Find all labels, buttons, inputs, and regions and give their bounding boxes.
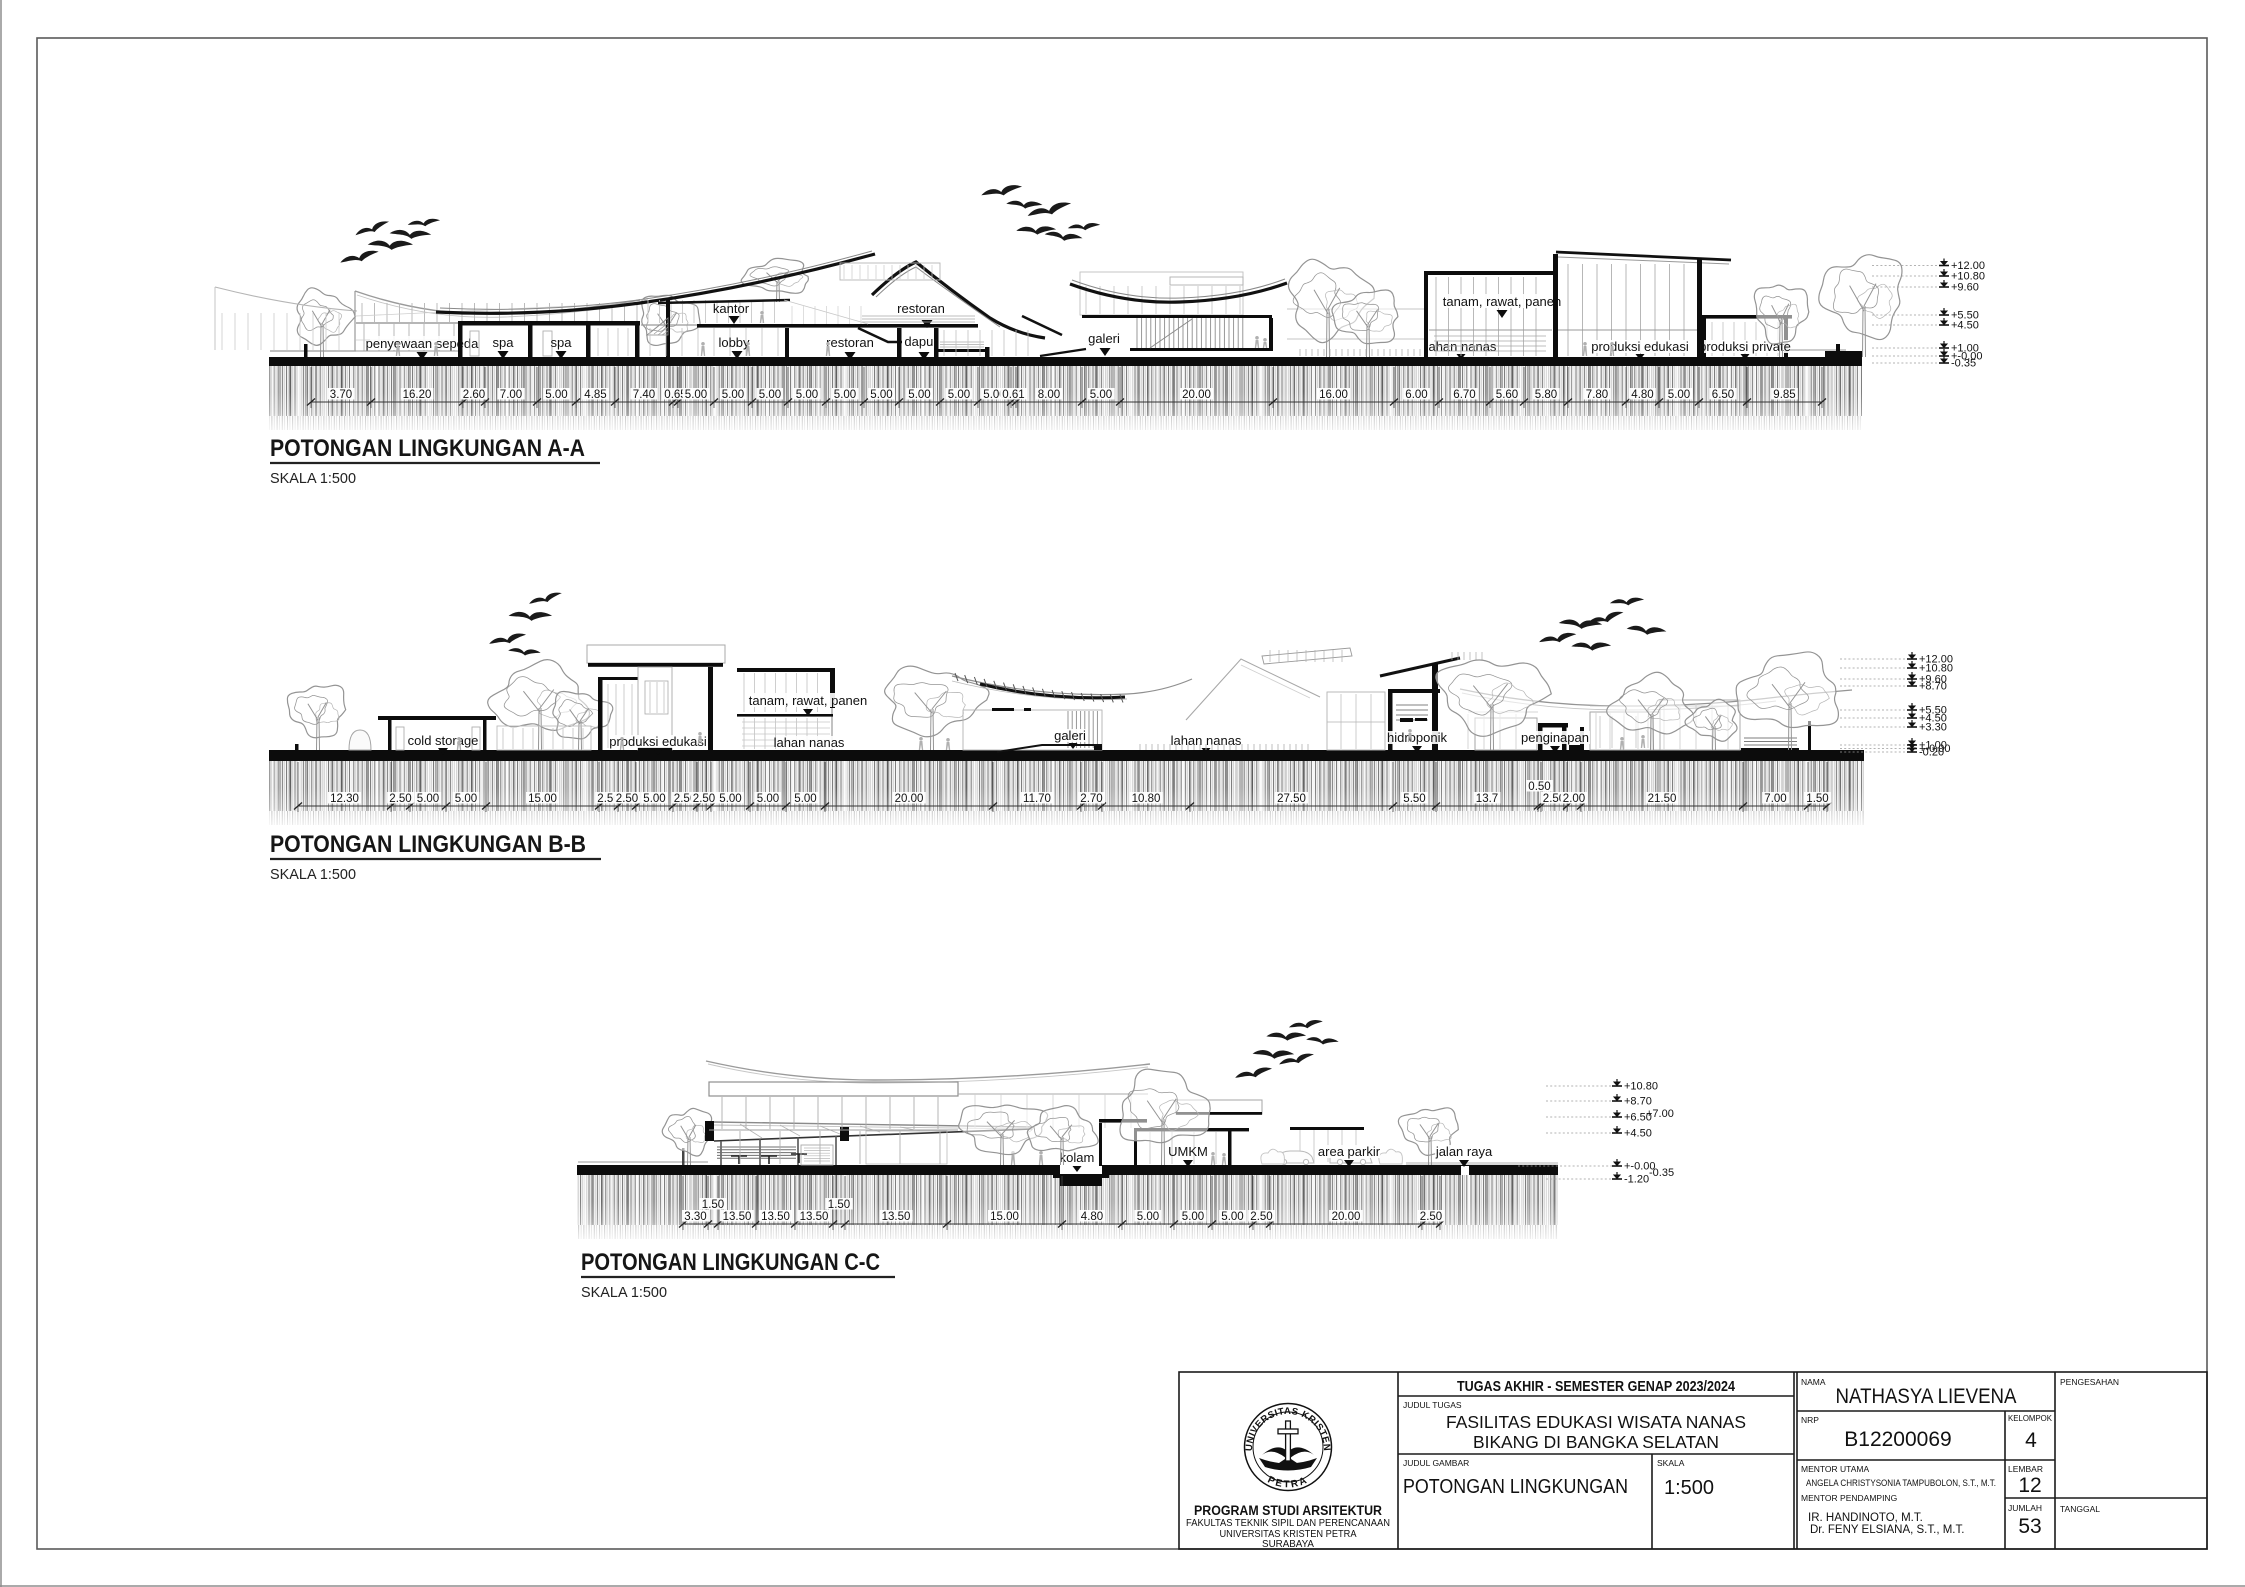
svg-text:5.00: 5.00	[948, 389, 970, 401]
svg-text:NAMA: NAMA	[1801, 1377, 1826, 1387]
svg-text:2.00: 2.00	[1563, 793, 1585, 805]
svg-text:TUGAS AKHIR - SEMESTER GENAP 2: TUGAS AKHIR - SEMESTER GENAP 2023/2024	[1457, 1378, 1736, 1395]
svg-text:5.00: 5.00	[643, 793, 665, 805]
svg-text:6.70: 6.70	[1453, 389, 1475, 401]
svg-text:12.30: 12.30	[330, 793, 359, 805]
svg-text:+7.00: +7.00	[1646, 1108, 1674, 1120]
svg-text:SKALA 1:500: SKALA 1:500	[270, 470, 356, 487]
svg-text:restoran: restoran	[897, 301, 945, 316]
svg-text:5.00: 5.00	[1137, 1211, 1159, 1223]
svg-text:spa: spa	[551, 335, 573, 350]
svg-text:+4.50: +4.50	[1624, 1128, 1652, 1140]
svg-text:spa: spa	[493, 335, 515, 350]
svg-text:5.00: 5.00	[417, 793, 439, 805]
svg-text:galeri: galeri	[1054, 728, 1086, 743]
svg-text:TANGGAL: TANGGAL	[2060, 1504, 2100, 1514]
svg-text:FASILITAS EDUKASI WISATA NANAS: FASILITAS EDUKASI WISATA NANAS	[1446, 1412, 1746, 1432]
svg-text:13.7: 13.7	[1476, 793, 1498, 805]
svg-text:area parkir: area parkir	[1318, 1144, 1381, 1159]
svg-text:20.00: 20.00	[1182, 389, 1211, 401]
svg-text:5.00: 5.00	[1182, 1211, 1204, 1223]
svg-text:UMKM: UMKM	[1168, 1144, 1208, 1159]
svg-text:5.00: 5.00	[1221, 1211, 1243, 1223]
svg-text:7.00: 7.00	[500, 389, 522, 401]
svg-text:2.50: 2.50	[616, 793, 638, 805]
svg-text:5.00: 5.00	[794, 793, 816, 805]
svg-text:POTONGAN LINGKUNGAN: POTONGAN LINGKUNGAN	[1403, 1476, 1628, 1498]
svg-text:PROGRAM STUDI ARSITEKTUR: PROGRAM STUDI ARSITEKTUR	[1194, 1503, 1382, 1518]
svg-text:2.50: 2.50	[389, 793, 411, 805]
svg-text:5.00: 5.00	[455, 793, 477, 805]
svg-text:+9.60: +9.60	[1951, 282, 1979, 294]
svg-text:+10.80: +10.80	[1624, 1081, 1658, 1093]
svg-text:21.50: 21.50	[1648, 793, 1677, 805]
svg-text:13.50: 13.50	[882, 1211, 911, 1223]
svg-text:-0.20: -0.20	[1919, 747, 1944, 759]
svg-text:penginapan: penginapan	[1521, 730, 1589, 745]
svg-text:5.60: 5.60	[1496, 389, 1518, 401]
svg-text:+8.70: +8.70	[1624, 1096, 1652, 1108]
svg-text:2.50: 2.50	[1420, 1211, 1442, 1223]
svg-text:tanam, rawat, panen: tanam, rawat, panen	[1443, 294, 1562, 309]
svg-text:5.00: 5.00	[796, 389, 818, 401]
svg-text:4.80: 4.80	[1081, 1211, 1103, 1223]
svg-text:+3.30: +3.30	[1919, 722, 1947, 734]
svg-text:16.20: 16.20	[403, 389, 432, 401]
svg-text:restoran: restoran	[826, 335, 874, 350]
svg-text:4.80: 4.80	[1631, 389, 1653, 401]
svg-text:27.50: 27.50	[1277, 793, 1306, 805]
svg-text:16.00: 16.00	[1319, 389, 1348, 401]
svg-text:7.00: 7.00	[1764, 793, 1786, 805]
svg-text:2.50: 2.50	[1250, 1211, 1272, 1223]
svg-text:PENGESAHAN: PENGESAHAN	[2060, 1377, 2119, 1387]
svg-text:5.00: 5.00	[759, 389, 781, 401]
svg-text:JUMLAH: JUMLAH	[2008, 1503, 2042, 1513]
svg-text:6.50: 6.50	[1712, 389, 1734, 401]
svg-text:MENTOR UTAMA: MENTOR UTAMA	[1801, 1464, 1869, 1474]
svg-text:1.50: 1.50	[828, 1199, 850, 1211]
svg-text:7.40: 7.40	[633, 389, 655, 401]
svg-text:NATHASYA LIEVENA: NATHASYA LIEVENA	[1836, 1385, 2017, 1408]
svg-text:5.00: 5.00	[908, 389, 930, 401]
svg-text:kolam: kolam	[1060, 1150, 1095, 1165]
svg-text:JUDUL GAMBAR: JUDUL GAMBAR	[1403, 1458, 1469, 1468]
svg-text:JUDUL TUGAS: JUDUL TUGAS	[1403, 1400, 1462, 1410]
svg-text:4.85: 4.85	[584, 389, 606, 401]
svg-text:-0.35: -0.35	[1649, 1167, 1674, 1179]
svg-text:15.00: 15.00	[990, 1211, 1019, 1223]
svg-text:+4.50: +4.50	[1951, 320, 1979, 332]
svg-text:IR. HANDINOTO, M.T.: IR. HANDINOTO, M.T.	[1808, 1512, 1923, 1524]
svg-text:produksi edukasi: produksi edukasi	[1591, 339, 1689, 354]
svg-text:B12200069: B12200069	[1844, 1428, 1951, 1451]
svg-text:5.00: 5.00	[1668, 389, 1690, 401]
svg-text:5.00: 5.00	[722, 389, 744, 401]
svg-text:SKALA 1:500: SKALA 1:500	[270, 866, 356, 883]
svg-text:SKALA 1:500: SKALA 1:500	[581, 1284, 667, 1301]
svg-text:-1.20: -1.20	[1624, 1174, 1649, 1186]
svg-text:20.00: 20.00	[1332, 1211, 1361, 1223]
svg-text:9.85: 9.85	[1773, 389, 1795, 401]
svg-text:FAKULTAS TEKNIK SIPIL DAN PERE: FAKULTAS TEKNIK SIPIL DAN PERENCANAAN	[1186, 1518, 1390, 1529]
svg-text:SKALA: SKALA	[1657, 1458, 1685, 1468]
svg-text:4: 4	[2025, 1429, 2037, 1452]
svg-text:5.00: 5.00	[685, 389, 707, 401]
svg-text:Dr. FENY ELSIANA, S.T., M.T.: Dr. FENY ELSIANA, S.T., M.T.	[1810, 1524, 1964, 1536]
svg-text:dapur: dapur	[904, 334, 938, 349]
svg-text:cold storage: cold storage	[408, 733, 479, 748]
svg-text:5.80: 5.80	[1535, 389, 1557, 401]
svg-text:0.61: 0.61	[1002, 389, 1024, 401]
svg-text:jalan raya: jalan raya	[1435, 1144, 1493, 1159]
svg-text:13.50: 13.50	[723, 1211, 752, 1223]
svg-text:BIKANG DI BANGKA SELATAN: BIKANG DI BANGKA SELATAN	[1473, 1432, 1719, 1452]
svg-text:KELOMPOK: KELOMPOK	[2008, 1413, 2052, 1423]
svg-text:5.00: 5.00	[719, 793, 741, 805]
svg-text:POTONGAN LINGKUNGAN A-A: POTONGAN LINGKUNGAN A-A	[270, 435, 585, 462]
svg-text:LEMBAR: LEMBAR	[2008, 1464, 2043, 1474]
svg-text:5.00: 5.00	[1090, 389, 1112, 401]
svg-text:1.50: 1.50	[702, 1199, 724, 1211]
svg-text:5.50: 5.50	[1403, 793, 1425, 805]
svg-text:2.70: 2.70	[1080, 793, 1102, 805]
svg-text:1:500: 1:500	[1664, 1477, 1714, 1499]
svg-text:-0.35: -0.35	[1951, 358, 1976, 370]
svg-text:lobby: lobby	[718, 335, 750, 350]
svg-text:5.00: 5.00	[545, 389, 567, 401]
svg-text:5.00: 5.00	[757, 793, 779, 805]
svg-text:5.00: 5.00	[834, 389, 856, 401]
svg-text:13.50: 13.50	[800, 1211, 829, 1223]
svg-text:6.00: 6.00	[1405, 389, 1427, 401]
svg-text:15.00: 15.00	[528, 793, 557, 805]
svg-text:SURABAYA: SURABAYA	[1262, 1539, 1314, 1550]
svg-text:kantor: kantor	[713, 301, 750, 316]
svg-text:13.50: 13.50	[761, 1211, 790, 1223]
svg-text:2.50: 2.50	[693, 793, 715, 805]
svg-text:POTONGAN LINGKUNGAN C-C: POTONGAN LINGKUNGAN C-C	[581, 1249, 880, 1276]
svg-text:12: 12	[2018, 1474, 2041, 1497]
svg-text:POTONGAN LINGKUNGAN B-B: POTONGAN LINGKUNGAN B-B	[270, 831, 586, 858]
svg-text:3.70: 3.70	[330, 389, 352, 401]
svg-text:5.00: 5.00	[870, 389, 892, 401]
svg-text:lahan nanas: lahan nanas	[774, 735, 845, 750]
svg-text:3.30: 3.30	[684, 1211, 706, 1223]
svg-text:0.50: 0.50	[1528, 781, 1550, 793]
svg-text:galeri: galeri	[1088, 331, 1120, 346]
svg-text:2.60: 2.60	[463, 389, 485, 401]
svg-text:7.80: 7.80	[1586, 389, 1608, 401]
svg-text:tanam, rawat, panen: tanam, rawat, panen	[749, 693, 868, 708]
svg-text:8.00: 8.00	[1038, 389, 1060, 401]
svg-text:+8.70: +8.70	[1919, 681, 1947, 693]
svg-text:NRP: NRP	[1801, 1415, 1819, 1425]
svg-text:ANGELA CHRISTYSONIA TAMPUBOLON: ANGELA CHRISTYSONIA TAMPUBOLON, S.T., M.…	[1806, 1478, 1996, 1489]
svg-text:MENTOR PENDAMPING: MENTOR PENDAMPING	[1801, 1493, 1897, 1503]
svg-text:11.70: 11.70	[1023, 793, 1051, 805]
svg-text:1.50: 1.50	[1806, 793, 1828, 805]
svg-text:10.80: 10.80	[1132, 793, 1161, 805]
svg-text:53: 53	[2018, 1515, 2041, 1538]
svg-text:hidroponik: hidroponik	[1387, 730, 1447, 745]
svg-text:20.00: 20.00	[895, 793, 924, 805]
